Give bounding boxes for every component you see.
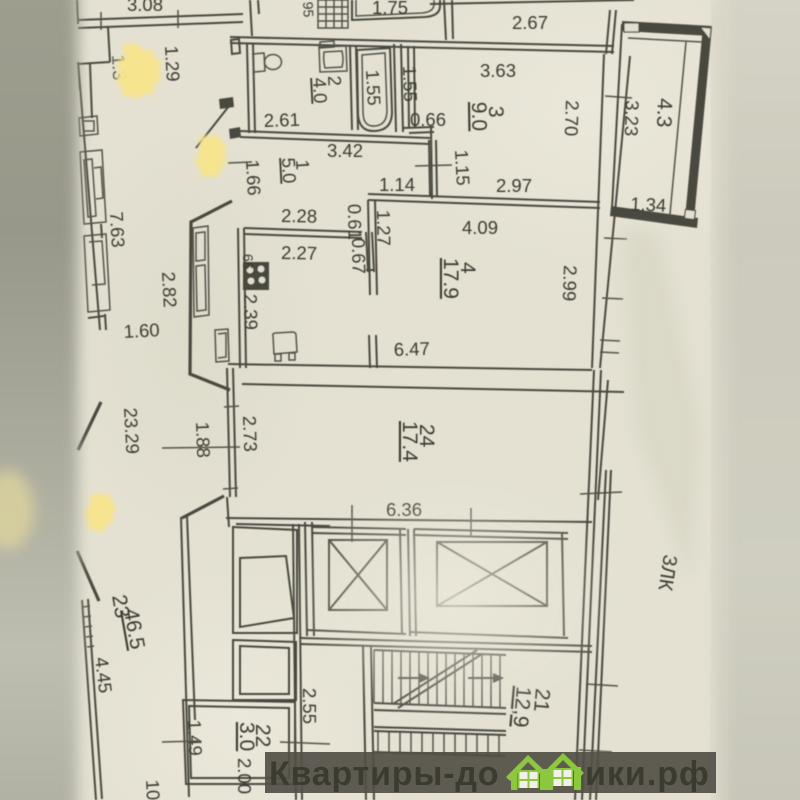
svg-text:Квартиры-до: Квартиры-до xyxy=(269,755,499,793)
svg-text:ики.рф: ики.рф xyxy=(585,755,710,793)
